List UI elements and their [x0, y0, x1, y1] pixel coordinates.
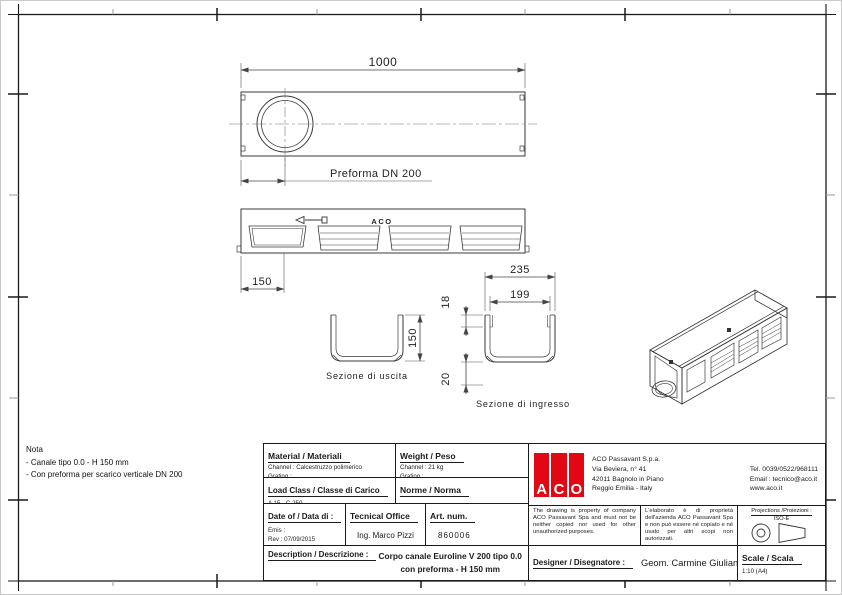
- section-inlet-edge-dim: 18: [440, 295, 452, 308]
- section-outlet-height-dim: 150: [407, 328, 419, 348]
- section-inlet-bottom-dim: 20: [440, 372, 452, 385]
- plan-length-dim: 1000: [369, 55, 398, 69]
- note-title: Nota: [26, 444, 183, 457]
- company-web: www.aco.it: [750, 484, 818, 494]
- plan-dimensions: 1000 Preforma DN 200: [241, 55, 525, 186]
- material-label: Material / Materiali: [268, 451, 350, 463]
- flow-direction-icon: [296, 217, 327, 224]
- elevation-dimensions: 150: [241, 253, 284, 293]
- section-inlet-view: [485, 315, 555, 363]
- note-line: - Con preforma per scarico verticale DN …: [26, 469, 183, 482]
- projections-label: Projections /Proiezioni :: [751, 508, 812, 516]
- artnum-label: Art. num.: [430, 511, 475, 523]
- office-value: Ing. Marco Pizzi: [350, 531, 421, 540]
- company-email: Email : tecnico@aco.it: [750, 475, 818, 485]
- section-inlet-outer-width-dim: 235: [510, 264, 530, 276]
- office-label: Tecnical Office: [350, 511, 418, 523]
- legal-text-it: L'elaborato è di proprietà dell'azienda …: [641, 506, 738, 545]
- designer-cell: Designer / Disegnatore : Geom. Carmine G…: [529, 546, 738, 580]
- drawing-sheet: 1000 Preforma DN 200: [0, 0, 842, 595]
- aco-logo-letter: C: [551, 453, 566, 497]
- weight-channel: Channel : 21 kg: [400, 464, 524, 473]
- projections-cell: Projections /Proiezioni : ISO-E: [738, 506, 825, 545]
- section-outlet-dimensions: 150: [405, 315, 425, 361]
- company-contact: Tel. 0039/0522/968111 Email : tecnico@ac…: [750, 455, 818, 494]
- company-address: ACO Passavant S.p.a. Via Beviera, n° 41 …: [592, 455, 664, 493]
- company-tel: Tel. 0039/0522/968111: [750, 465, 818, 475]
- material-cell: Material / Materiali Channel : Calcestru…: [264, 444, 395, 478]
- section-outlet-view: [331, 315, 403, 362]
- aco-logo-letter: A: [534, 453, 549, 497]
- date-rev: Rev : 07/09/2015: [268, 536, 341, 545]
- date-label: Date of / Data di :: [268, 512, 341, 523]
- legal-text-en: The drawing is property of company ACO P…: [529, 506, 641, 545]
- title-block-right: A C O ACO Passavant S.p.a. Via Beviera, …: [529, 444, 825, 580]
- scale-value: 1:10 (A4): [742, 568, 821, 577]
- date-emis: Emis :: [268, 527, 341, 536]
- description-line1: Corpo canale Euroline V 200 tipo 0.0: [376, 550, 524, 563]
- norm-cell: Norme / Norma UNI EN 1433: [396, 478, 528, 503]
- artnum-value: 860006: [438, 531, 524, 540]
- description-line2: con preforma - H 150 mm: [376, 563, 524, 576]
- office-cell: Tecnical Office Ing. Marco Pizzi: [346, 504, 426, 545]
- aco-logo: A C O: [534, 453, 584, 497]
- iso-projection-symbol-icon: [749, 522, 815, 544]
- title-block-left: Material / Materiali Channel : Calcestru…: [264, 444, 529, 580]
- isometric-view: [650, 290, 787, 404]
- date-cell: Date of / Data di : Emis : Rev : 07/09/2…: [264, 504, 346, 545]
- section-inlet-inner-width-dim: 199: [510, 289, 530, 301]
- weight-cell: Weight / Peso Channel : 21 kg Grating :: [396, 444, 528, 478]
- preforma-label: Preforma DN 200: [330, 168, 422, 180]
- section-outlet-title: Sezione di uscita: [326, 371, 408, 381]
- elevation-brand-text: ACO: [371, 217, 392, 226]
- elevation-left-dim: 150: [252, 276, 272, 288]
- load-class-cell: Load Class / Classe di Carico A 15 - C 2…: [264, 478, 395, 503]
- artnum-cell: Art. num. 860006: [426, 504, 528, 545]
- drawing-note: Nota - Canale tipo 0.0 - H 150 mm - Con …: [26, 444, 183, 482]
- company-cell: A C O ACO Passavant S.p.a. Via Beviera, …: [529, 444, 825, 506]
- section-inlet-dimensions: 235 199 18 20: [440, 264, 555, 394]
- weight-label: Weight / Peso: [400, 451, 464, 463]
- title-block: Material / Materiali Channel : Calcestru…: [263, 443, 826, 581]
- load-class-label: Load Class / Classe di Carico: [268, 486, 388, 497]
- note-line: - Canale tipo 0.0 - H 150 mm: [26, 457, 183, 470]
- elevation-view: [237, 209, 529, 253]
- description-label: Description / Descrizione :: [268, 550, 376, 561]
- designer-value: Geom. Carmine Giuliani: [641, 558, 738, 568]
- section-inlet-title: Sezione di ingresso: [476, 399, 570, 409]
- plan-view: [229, 88, 537, 166]
- material-channel: Channel : Calcestruzzo polimerico: [268, 464, 391, 473]
- aco-logo-letter: O: [569, 453, 584, 497]
- scale-cell: Scale / Scala 1:10 (A4): [738, 546, 825, 580]
- description-cell: Description / Descrizione : Corpo canale…: [264, 546, 528, 580]
- company-name: ACO Passavant S.p.a.: [592, 455, 664, 465]
- designer-label: Designer / Disegnatore :: [533, 558, 633, 569]
- load-class-value: A 15 - C 250: [268, 500, 391, 503]
- scale-label: Scale / Scala: [742, 553, 802, 565]
- norm-label: Norme / Norma: [400, 485, 469, 497]
